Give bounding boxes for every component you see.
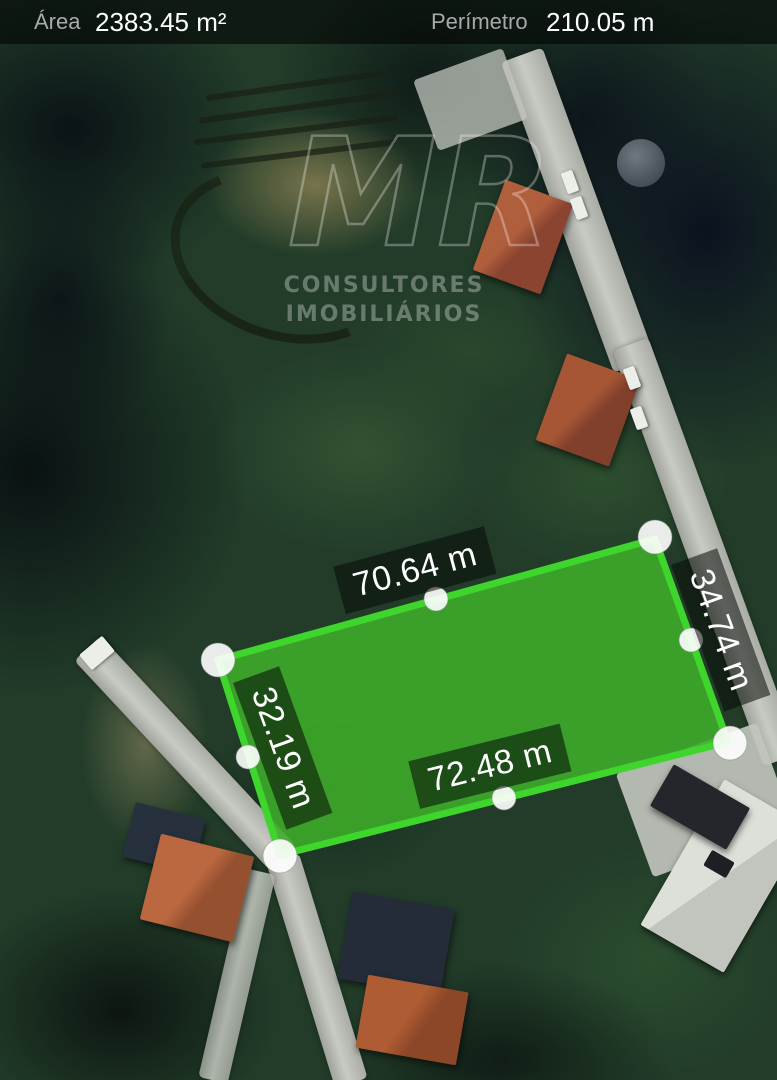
area-value: 2383.45 m² — [95, 7, 227, 38]
vertex-handle-top-right[interactable] — [638, 520, 672, 554]
vertex-handle-bottom-right[interactable] — [713, 726, 747, 760]
satellite-map[interactable]: MR CONSULTORES IMOBILIÁRIOS 70.64 m 34.7… — [0, 0, 777, 1080]
perimeter-value: 210.05 m — [546, 7, 654, 38]
header-bar: Área 2383.45 m² Perímetro 210.05 m — [0, 0, 777, 44]
measurement-overlay — [0, 0, 777, 1080]
vertex-handle-top-left[interactable] — [201, 643, 235, 677]
midpoint-handle-left-edge[interactable] — [236, 745, 260, 769]
perimeter-label: Perímetro — [431, 9, 528, 35]
area-label: Área — [34, 9, 80, 35]
vertex-handle-bottom-left[interactable] — [263, 839, 297, 873]
